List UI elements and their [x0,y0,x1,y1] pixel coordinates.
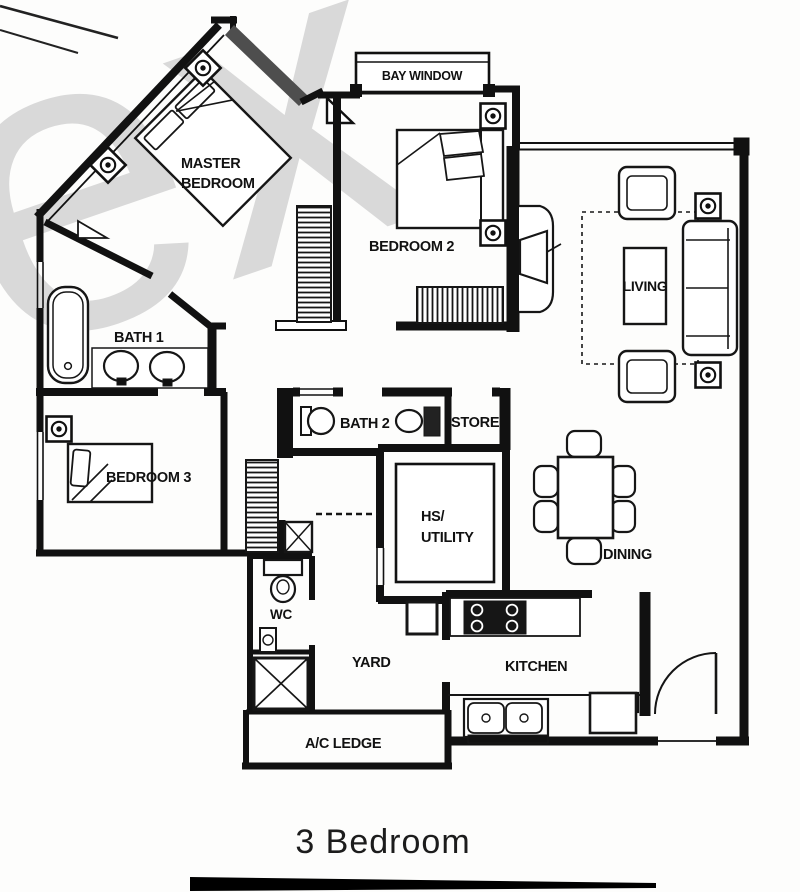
bedroom2-wardrobe-icon [417,287,503,323]
plan-caption: 3 Bedroom [295,823,470,861]
label-master-line2: BEDROOM [181,176,255,192]
wc-toilet-icon [264,560,302,602]
bedroom2-bed-icon [397,130,503,228]
label-kitchen: KITCHEN [505,659,567,675]
label-bedroom3: BEDROOM 3 [106,470,191,486]
shaft-large-icon [254,658,308,709]
label-living: LIVING [623,278,668,294]
label-dining: DINING [603,547,652,563]
label-bath1: BATH 1 [114,330,164,346]
kitchen-counter-icon [590,693,636,733]
living-armchair-bottom-icon [619,351,675,402]
bedroom3-wardrobe-icon [246,460,278,552]
wc-basin-icon [260,628,276,652]
bath2-basin-icon [301,407,334,435]
label-bath2: BATH 2 [340,416,390,432]
floor-plan-image: ex [0,0,800,892]
washer-icon [407,602,437,634]
bath1-tub-icon [48,287,88,383]
label-bedroom2: BEDROOM 2 [369,239,454,255]
entrance-door [655,653,716,714]
bath2-toilet-icon [396,407,440,436]
bottom-bar [190,877,656,891]
tv-console-icon [519,206,561,312]
living-armchair-top-icon [619,167,675,219]
bath1-basins-icon [92,348,208,388]
dining-table-icon [534,431,635,564]
kitchen-stove-icon [450,598,580,636]
label-master-line1: MASTER [181,156,241,172]
sofa-icon [683,221,737,355]
label-wc: WC [270,607,292,622]
label-ac-ledge: A/C LEDGE [305,736,382,752]
label-bay-window: BAY WINDOW [382,69,463,83]
shaft-small-icon [285,522,312,552]
label-yard: YARD [352,655,391,671]
label-hs-line1: HS/ [421,509,445,525]
master-wardrobe-icon [297,206,331,322]
label-hs-line2: UTILITY [421,530,474,546]
floorplan-page: ex [0,0,800,892]
label-store: STORE [451,415,500,431]
